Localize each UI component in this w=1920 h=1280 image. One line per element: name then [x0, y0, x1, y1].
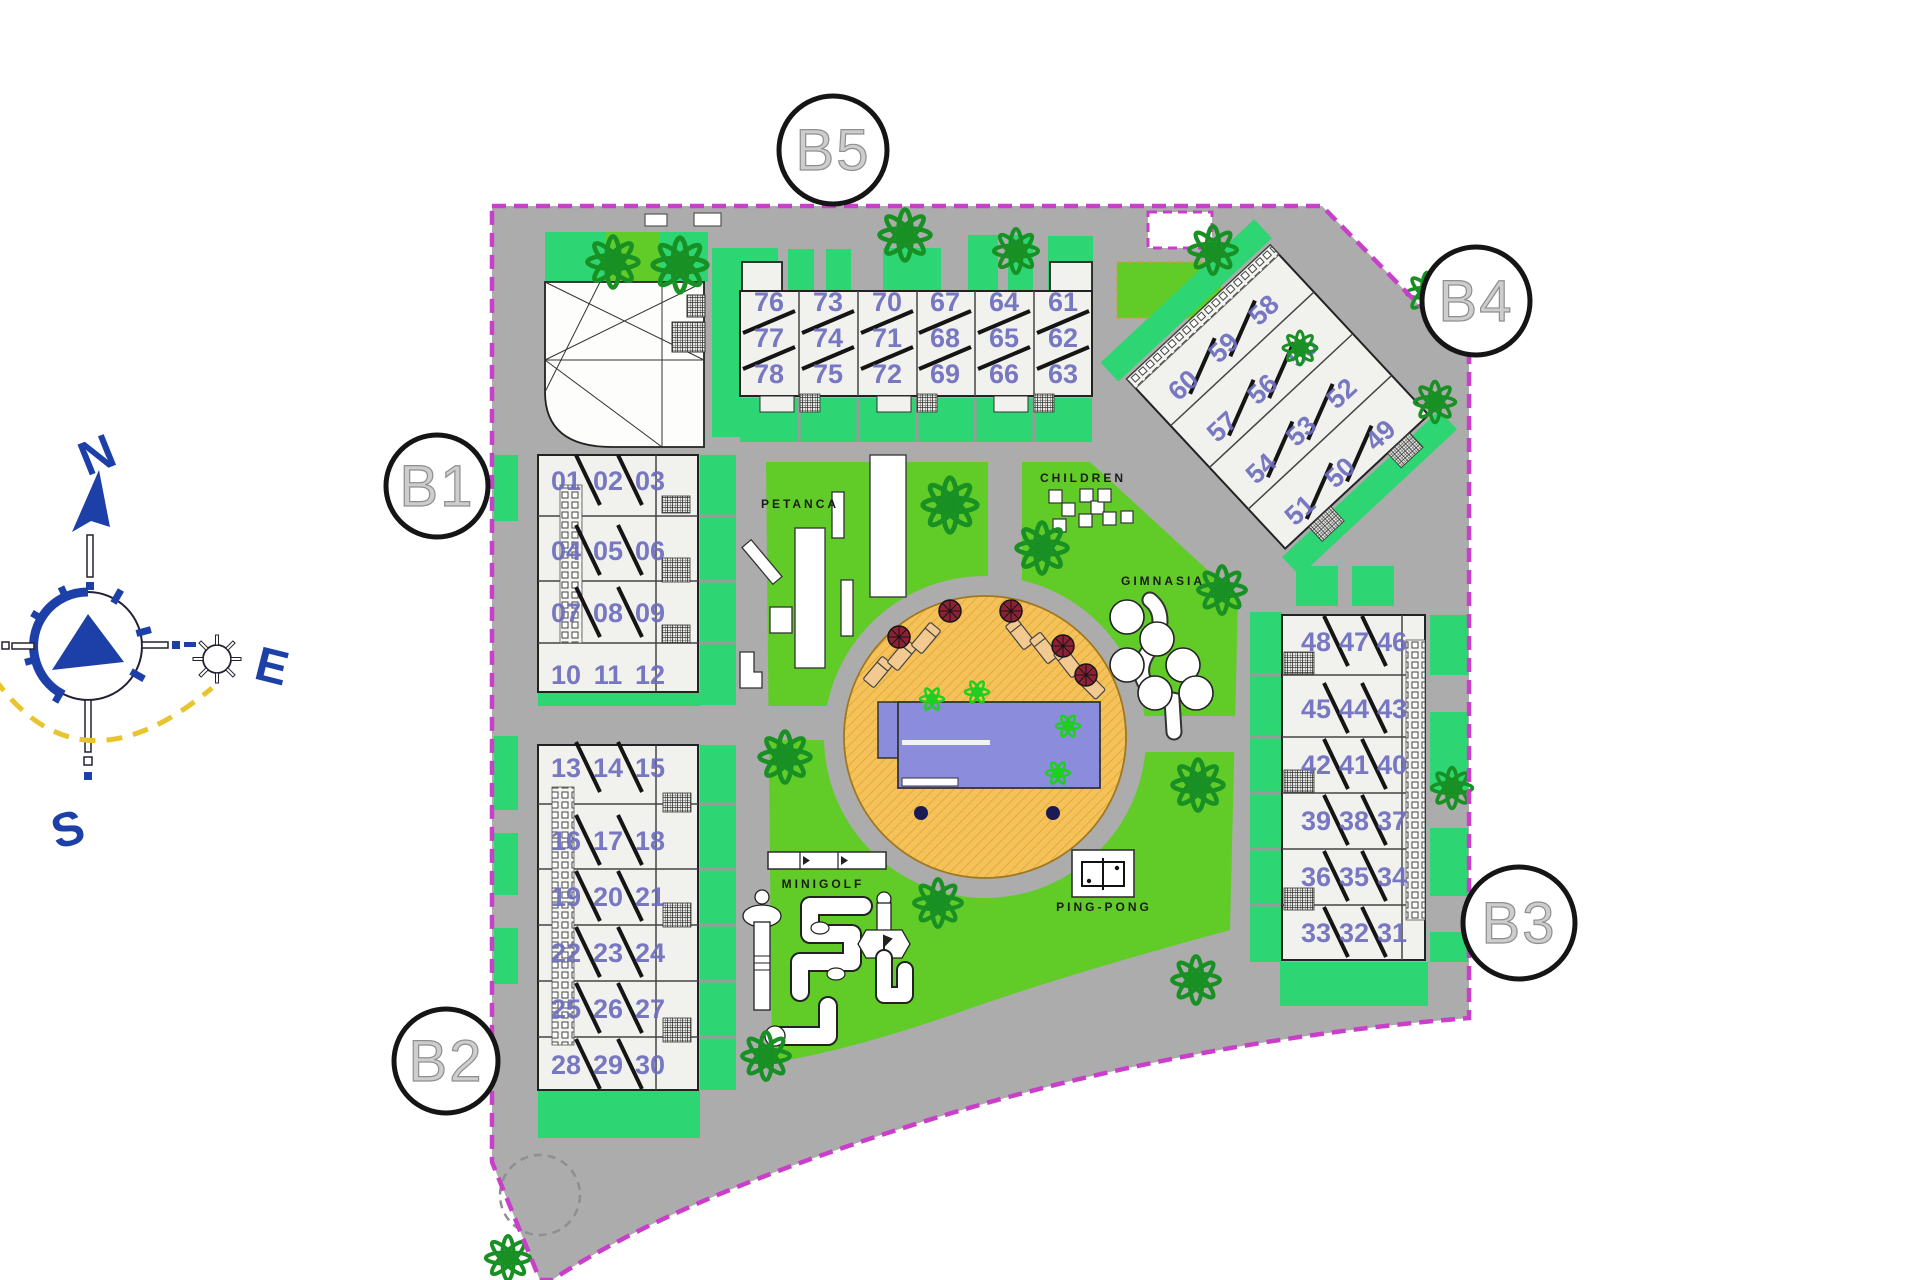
unit-number: 76 [754, 287, 784, 317]
unit-number: 12 [635, 660, 665, 690]
block-label-b4: B4 [1439, 269, 1514, 334]
unit-number: 28 [551, 1050, 581, 1080]
petanca-label: PETANCA [761, 497, 839, 511]
unit-number: 17 [593, 826, 623, 856]
unit-number: 32 [1339, 918, 1369, 948]
unit-number: 39 [1301, 806, 1331, 836]
unit-number: 03 [635, 466, 665, 496]
gate-mark [645, 214, 667, 226]
parking-canopy [545, 282, 704, 447]
unit-number: 16 [551, 826, 581, 856]
building-b5-outline [740, 291, 1092, 396]
unit-number: 47 [1339, 627, 1369, 657]
unit-number: 70 [872, 287, 902, 317]
unit-number: 11 [594, 660, 623, 690]
block-label-b3: B3 [1482, 891, 1557, 956]
stairs-hatch [663, 1018, 691, 1042]
unit-number: 01 [551, 466, 581, 496]
compass-bead [184, 642, 196, 647]
compass-south-label: S [46, 800, 91, 859]
unit-number: 05 [593, 536, 623, 566]
unit-number: 19 [551, 882, 581, 912]
unit-number: 20 [593, 882, 623, 912]
unit-number: 46 [1377, 627, 1407, 657]
block-circle-b2: B2 [394, 1009, 498, 1113]
sun-icon [193, 635, 241, 683]
stairs-hatch [672, 322, 705, 352]
unit-number: 71 [872, 323, 902, 353]
unit-number: 23 [593, 938, 623, 968]
stairs-hatch [917, 394, 937, 412]
unit-number: 02 [593, 466, 623, 496]
block-label-b5: B5 [796, 118, 871, 183]
compass-east-label: E [250, 637, 294, 696]
block-circle-b4: B4 [1422, 247, 1530, 355]
pingpong-label: PING-PONG [1056, 900, 1152, 914]
unit-number: 21 [635, 882, 665, 912]
compass-shaft-north [87, 535, 93, 577]
unit-number: 48 [1301, 627, 1331, 657]
stairs-hatch [662, 558, 690, 582]
unit-number: 33 [1301, 918, 1331, 948]
unit-number: 67 [930, 287, 960, 317]
road-north-south [988, 455, 1022, 585]
unit-number: 72 [872, 359, 902, 389]
unit-number: 29 [593, 1050, 623, 1080]
compass-bead [172, 641, 180, 649]
unit-number: 38 [1339, 806, 1369, 836]
unit-number: 78 [754, 359, 784, 389]
unit-number: 34 [1377, 862, 1407, 892]
building-b1: 01 02 03 04 05 06 07 08 09 10 11 12 [538, 455, 736, 706]
block-label-b1: B1 [400, 454, 475, 519]
compass-bead [2, 642, 9, 649]
unit-number: 09 [635, 598, 665, 628]
unit-number: 43 [1377, 694, 1407, 724]
pool-shower [914, 806, 928, 820]
unit-number: 61 [1048, 287, 1078, 317]
block-circle-b5: B5 [779, 96, 887, 204]
site-plan-page: N S E [0, 0, 1920, 1280]
unit-number: 35 [1339, 862, 1369, 892]
unit-number: 07 [551, 598, 581, 628]
unit-number: 77 [754, 323, 784, 353]
compass-shaft-east [142, 642, 168, 648]
unit-number: 13 [551, 753, 581, 783]
unit-number: 41 [1339, 750, 1369, 780]
compass-shaft-west [12, 643, 34, 649]
unit-number: 15 [635, 753, 665, 783]
unit-number: 36 [1301, 862, 1331, 892]
unit-number: 27 [635, 994, 665, 1024]
unit-number: 42 [1301, 750, 1331, 780]
unit-number: 37 [1377, 806, 1407, 836]
compass-bead [84, 757, 92, 765]
unit-number: 75 [813, 359, 843, 389]
unit-number: 14 [593, 753, 623, 783]
block-circle-b3: B3 [1463, 867, 1575, 979]
unit-number: 18 [635, 826, 665, 856]
unit-number: 68 [930, 323, 960, 353]
children-label: CHILDREN [1040, 471, 1126, 485]
unit-number: 63 [1048, 359, 1078, 389]
unit-number: 45 [1301, 694, 1331, 724]
unit-number: 66 [989, 359, 1019, 389]
unit-number: 06 [635, 536, 665, 566]
terrace-strip [1406, 640, 1425, 920]
block-circle-b1: B1 [386, 435, 488, 537]
site-plan-svg: N S E [0, 0, 1920, 1280]
unit-number: 62 [1048, 323, 1078, 353]
pool-shower [1046, 806, 1060, 820]
unit-number: 74 [813, 323, 843, 353]
minigolf-label: MINIGOLF [782, 877, 865, 891]
stairs-hatch [687, 295, 705, 317]
pool-area [844, 596, 1126, 878]
block-label-b2: B2 [409, 1029, 484, 1094]
unit-number: 44 [1339, 694, 1369, 724]
stairs-hatch [800, 394, 820, 412]
unit-number: 26 [593, 994, 623, 1024]
compass-bead [84, 772, 92, 780]
compass-shaft-south [85, 700, 91, 752]
stairs-hatch [663, 793, 691, 812]
stairs-hatch [662, 496, 690, 513]
unit-number: 22 [551, 938, 581, 968]
unit-number: 40 [1377, 750, 1407, 780]
road-east [1135, 716, 1235, 752]
compass-rose: N S E [0, 425, 294, 860]
stairs-hatch [663, 903, 691, 927]
unit-number: 31 [1377, 918, 1407, 948]
garden-strip [1250, 612, 1282, 962]
unit-number: 25 [551, 994, 581, 1024]
unit-number: 73 [813, 287, 843, 317]
gimnasia-label: GIMNASIA [1121, 574, 1205, 588]
unit-number: 08 [593, 598, 623, 628]
building-b2: 13 14 15 16 17 18 19 20 21 22 23 24 25 2… [538, 742, 736, 1138]
unit-number: 65 [989, 323, 1019, 353]
unit-number: 24 [635, 938, 665, 968]
unit-number: 10 [551, 660, 581, 690]
unit-number: 04 [551, 536, 581, 566]
unit-number: 64 [989, 287, 1019, 317]
gate-mark [694, 213, 721, 226]
pingpong-area [1072, 850, 1134, 897]
stairs-hatch [662, 625, 690, 643]
stairs-hatch [1034, 394, 1054, 412]
unit-number: 69 [930, 359, 960, 389]
unit-number: 30 [635, 1050, 665, 1080]
